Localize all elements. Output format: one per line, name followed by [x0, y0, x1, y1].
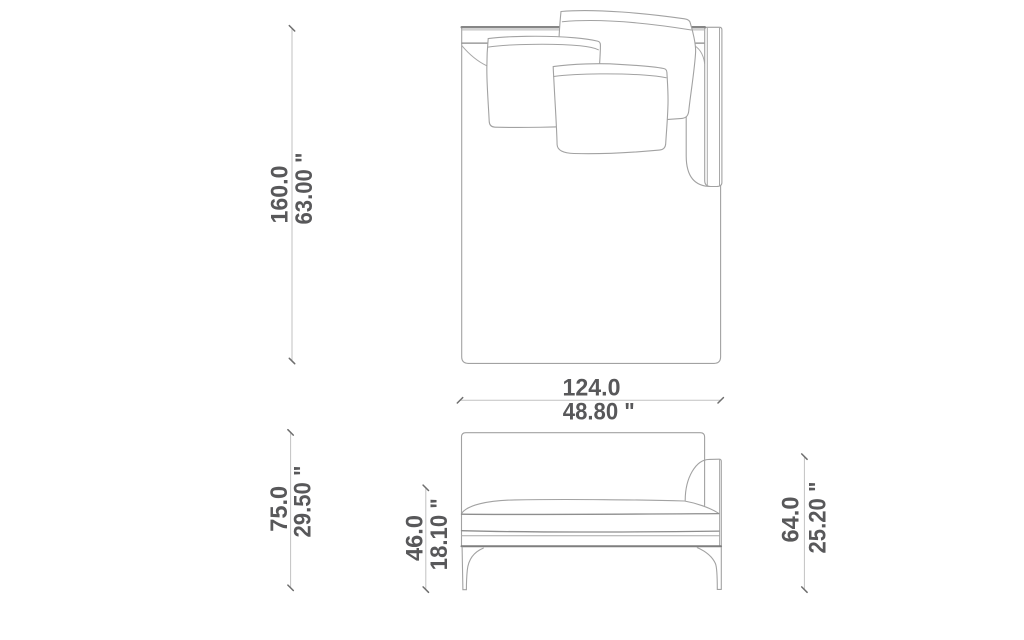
svg-text:48.80 ": 48.80 "	[563, 399, 635, 426]
svg-text:64.0: 64.0	[778, 497, 805, 543]
svg-text:46.0: 46.0	[402, 515, 429, 561]
svg-text:25.20 ": 25.20 "	[804, 482, 831, 554]
svg-text:160.0: 160.0	[267, 166, 294, 224]
svg-text:29.50 ": 29.50 "	[290, 466, 317, 538]
svg-text:63.00 ": 63.00 "	[291, 153, 318, 225]
svg-text:18.10 ": 18.10 "	[426, 498, 453, 570]
svg-text:124.0: 124.0	[563, 374, 621, 401]
